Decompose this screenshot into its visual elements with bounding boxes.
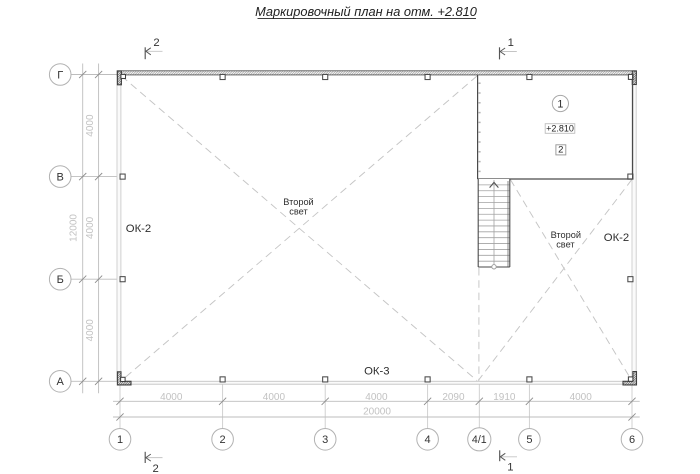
- svg-text:Г: Г: [57, 69, 63, 81]
- svg-text:2: 2: [152, 463, 158, 474]
- svg-text:свет: свет: [289, 206, 308, 216]
- svg-text:3: 3: [322, 434, 328, 446]
- svg-text:12000: 12000: [68, 214, 79, 242]
- svg-text:ОК-2: ОК-2: [126, 223, 151, 235]
- svg-text:Второй: Второй: [551, 230, 581, 240]
- svg-text:4000: 4000: [85, 319, 96, 342]
- svg-text:1: 1: [507, 461, 513, 473]
- svg-text:4000: 4000: [365, 392, 388, 403]
- svg-text:20000: 20000: [363, 407, 391, 418]
- svg-text:Второй: Второй: [283, 197, 313, 207]
- svg-text:6: 6: [629, 434, 635, 446]
- svg-text:4000: 4000: [85, 216, 96, 239]
- svg-text:4000: 4000: [263, 392, 286, 403]
- svg-text:А: А: [57, 376, 65, 388]
- svg-text:4/1: 4/1: [472, 434, 487, 446]
- svg-text:2090: 2090: [442, 392, 465, 403]
- svg-text:1910: 1910: [493, 392, 516, 403]
- svg-text:4000: 4000: [160, 392, 183, 403]
- svg-text:ОК-2: ОК-2: [604, 232, 629, 244]
- svg-text:Маркировочный план на отм. +2.: Маркировочный план на отм. +2.810: [255, 4, 478, 19]
- svg-text:Б: Б: [57, 274, 64, 286]
- svg-text:5: 5: [526, 434, 532, 446]
- svg-text:2: 2: [153, 37, 159, 49]
- svg-text:1: 1: [557, 98, 563, 110]
- svg-text:4: 4: [425, 434, 431, 446]
- svg-text:1: 1: [508, 37, 514, 49]
- svg-text:2: 2: [558, 145, 563, 156]
- svg-text:ОК-3: ОК-3: [364, 366, 389, 378]
- svg-text:В: В: [57, 172, 64, 184]
- svg-text:+2.810: +2.810: [546, 124, 574, 134]
- svg-text:4000: 4000: [85, 114, 96, 137]
- svg-text:2: 2: [220, 434, 226, 446]
- svg-text:4000: 4000: [570, 392, 593, 403]
- svg-text:1: 1: [117, 434, 123, 446]
- svg-text:свет: свет: [556, 239, 575, 249]
